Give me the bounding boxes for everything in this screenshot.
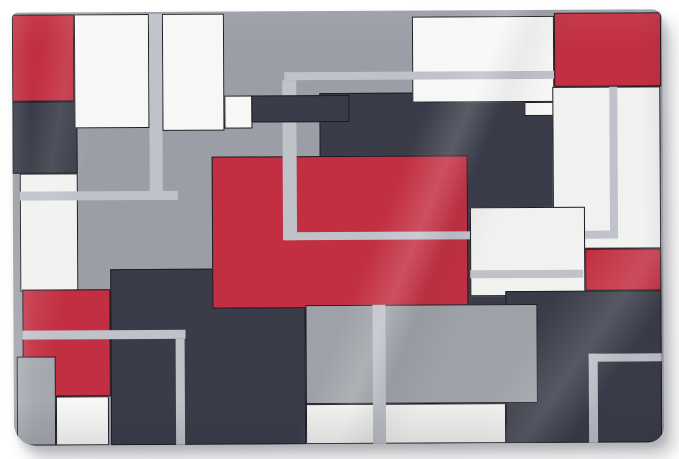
shape-white-strip-bottom — [306, 403, 506, 444]
shape-white-top-notch — [224, 95, 252, 128]
shape-corner-stripe-br-vertical — [589, 354, 598, 443]
shape-corner-stripe-ll-vertical — [176, 339, 186, 445]
shape-corner-stripe-ll-horizontal — [23, 330, 186, 340]
shape-outline-square-left — [282, 120, 297, 240]
shape-outline-square-left-upper — [282, 80, 296, 96]
product-image-canvas — [0, 0, 679, 459]
shape-corner-stripe-br-horizontal — [589, 353, 662, 361]
shape-red-top-right — [554, 12, 661, 87]
shape-white-mid-right — [470, 207, 585, 297]
shape-gray-strip-bottom-left — [17, 356, 56, 445]
shape-red-right-mid — [585, 248, 661, 290]
shape-stripe-bottom-vertical — [372, 305, 386, 444]
shape-stripe-on-white-mid — [470, 270, 583, 279]
shape-navy-left — [12, 101, 77, 173]
shape-gray-rect-bottom — [305, 304, 538, 404]
shape-stripe-left-vertical — [149, 14, 163, 200]
shape-white-top-second — [162, 14, 225, 131]
shape-white-square-bottom-left — [56, 396, 109, 445]
shape-stripe-left-horizontal — [20, 191, 178, 201]
shape-white-top-center — [412, 16, 554, 103]
shape-outline-square-right — [609, 79, 618, 239]
shape-white-top-center-step — [524, 102, 554, 116]
shape-navy-top-bar — [251, 95, 349, 123]
shape-red-top-left — [12, 14, 74, 101]
shape-white-top-left — [74, 14, 150, 128]
tapestry-artwork — [12, 9, 664, 445]
